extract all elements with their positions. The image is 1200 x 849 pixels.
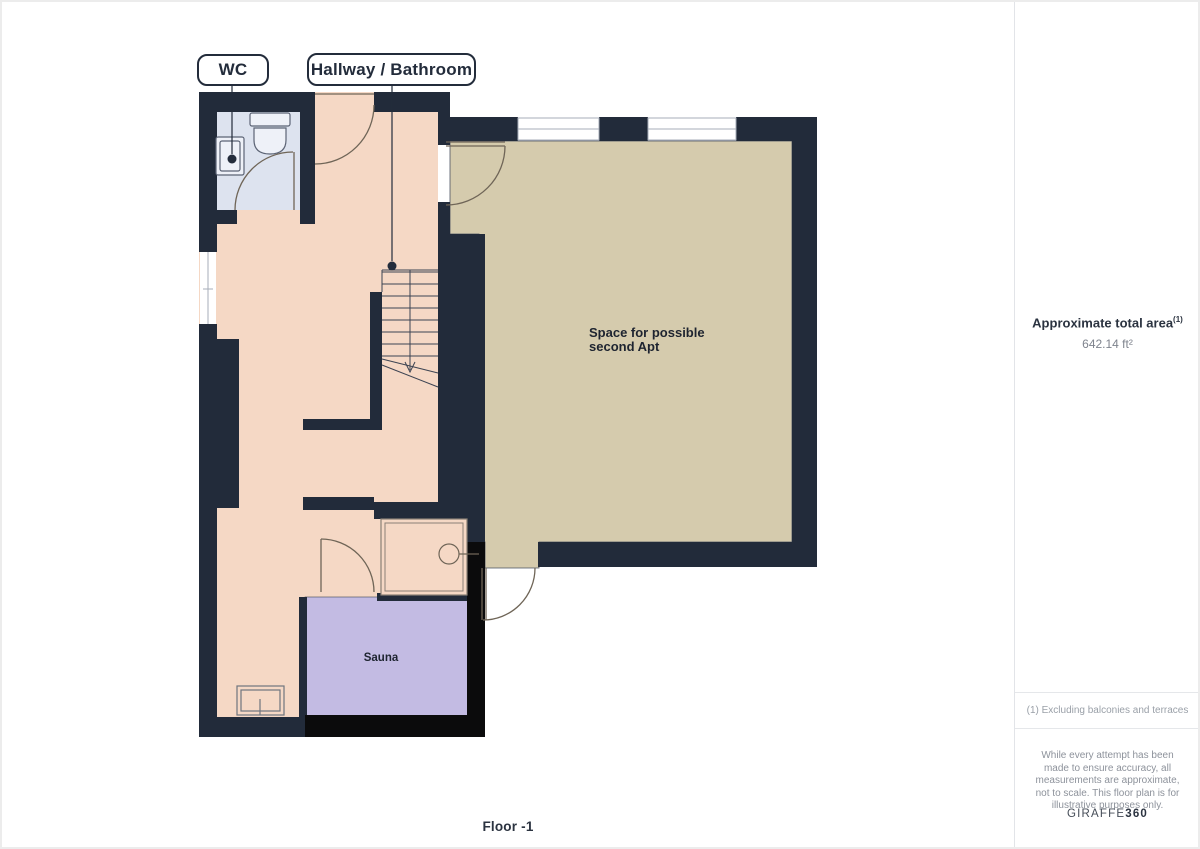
floorplan-drawing [2,2,1014,849]
total-area-title: Approximate total area(1) [1015,315,1200,330]
area-footnote: (1) Excluding balconies and terraces [1015,692,1200,729]
sauna-label: Sauna [332,652,430,664]
floorplan-page: WC Hallway / Bathroom Space for possible… [0,0,1200,849]
second-apt-floor [450,141,792,568]
room-tag-hallway-label: Hallway / Bathroom [311,60,472,80]
brand-suffix: 360 [1125,808,1148,820]
wc-leader-dot [228,155,237,164]
area-footnote-marker: (1) [1173,315,1183,324]
floor-level-label: Floor -1 [2,819,1014,834]
brand-name: GIRAFFE [1067,808,1125,820]
shower [381,519,479,595]
total-area-value: 642.14 ft² [1015,337,1200,351]
room-tag-wc-label: WC [219,60,248,80]
total-area-block: Approximate total area(1) 642.14 ft² [1015,315,1200,351]
toilet-bowl [254,128,286,154]
giraffe360-logo: GIRAFFE360 [1015,808,1200,820]
room-tag-hallway-bathroom: Hallway / Bathroom [307,53,476,86]
second-apt-label: Space for possible second Apt [589,326,705,354]
exterior-door-arc [483,568,535,620]
room-tag-wc: WC [197,54,269,86]
info-sidebar: Approximate total area(1) 642.14 ft² (1)… [1014,2,1200,847]
disclaimer-text: While every attempt has been made to ens… [1029,750,1186,813]
hallway-leader-dot [388,262,397,271]
toilet-tank [250,113,290,126]
